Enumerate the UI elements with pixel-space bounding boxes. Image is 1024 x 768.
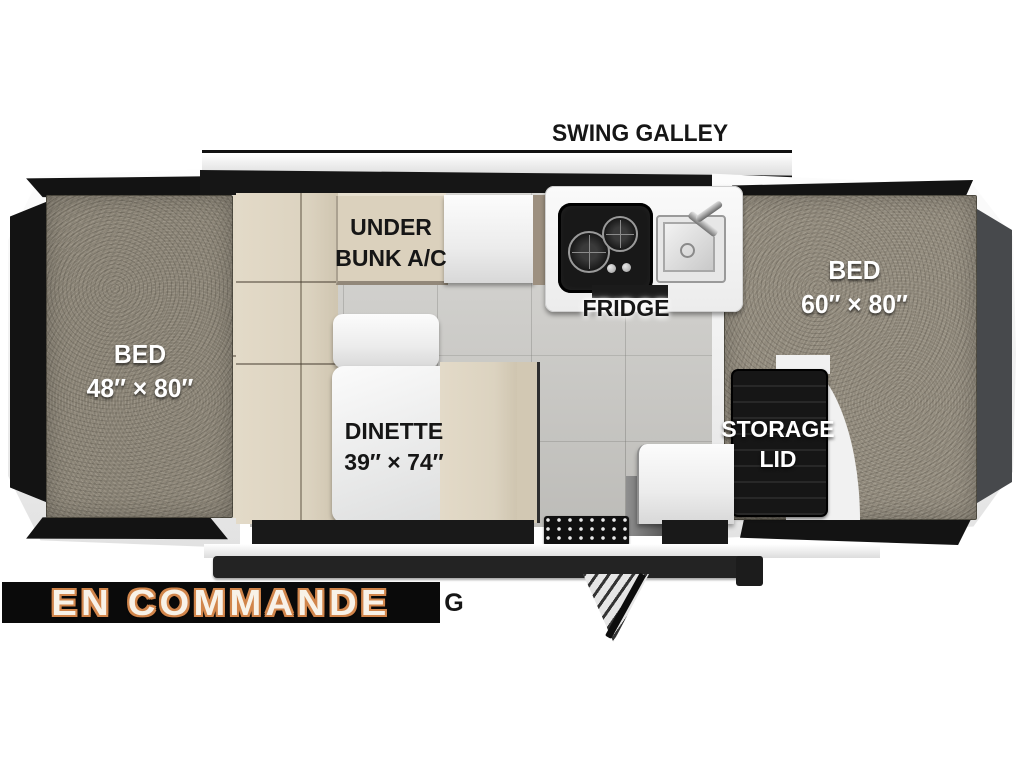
dinette-label: DINETTE39″ × 74″ <box>310 416 478 478</box>
bumper-rail <box>213 556 759 578</box>
fridge-label: FRIDGE <box>553 294 699 324</box>
bench-seam <box>236 281 338 283</box>
bed-right-name: BED <box>828 255 880 285</box>
bed-right-label: BED60″ × 80″ <box>757 254 952 322</box>
bumper-bracket <box>736 556 763 586</box>
storage-line1: STORAGE <box>721 416 834 442</box>
dinette-seat-back <box>333 314 439 368</box>
dinette-dim: 39″ × 74″ <box>344 449 443 475</box>
stove-knob-icon <box>622 263 631 272</box>
swing-galley-label: SWING GALLEY <box>526 118 754 149</box>
partial-model-text: G <box>438 587 470 620</box>
bed-left-label: BED48″ × 80″ <box>43 338 237 406</box>
left-tent-panel-bottom <box>22 514 228 542</box>
storage-lid-label: STORAGELID <box>716 414 840 475</box>
under-bunk-line2: BUNK A/C <box>335 245 447 271</box>
burner-icon <box>602 216 638 252</box>
floor-mat <box>252 520 534 546</box>
under-bunk-ac-label: UNDERBUNK A/C <box>300 212 482 274</box>
stove-icon <box>558 203 653 293</box>
sink-drain <box>680 243 695 258</box>
bench-seam <box>236 363 338 365</box>
dinette-name: DINETTE <box>345 418 443 444</box>
entry-step-mat <box>544 516 629 546</box>
status-banner-text: EN COMMANDE <box>51 582 390 624</box>
floor-mat <box>662 520 728 546</box>
bed-left-dim: 48″ × 80″ <box>87 373 194 403</box>
bed-left-name: BED <box>114 339 166 369</box>
sink-icon <box>656 215 726 283</box>
bed-right-dim: 60″ × 80″ <box>801 289 908 319</box>
storage-line2: LID <box>759 446 796 472</box>
floorplan-canvas: SWING GALLEY BED48″ × 80″ BED60″ × 80″ U… <box>0 0 1024 768</box>
dinette-bench-right-edge <box>517 362 540 523</box>
right-tent-panel-bottom <box>740 516 972 545</box>
under-bunk-line1: UNDER <box>350 214 432 240</box>
stove-knob-icon <box>607 264 616 273</box>
status-banner: EN COMMANDE <box>2 582 440 623</box>
